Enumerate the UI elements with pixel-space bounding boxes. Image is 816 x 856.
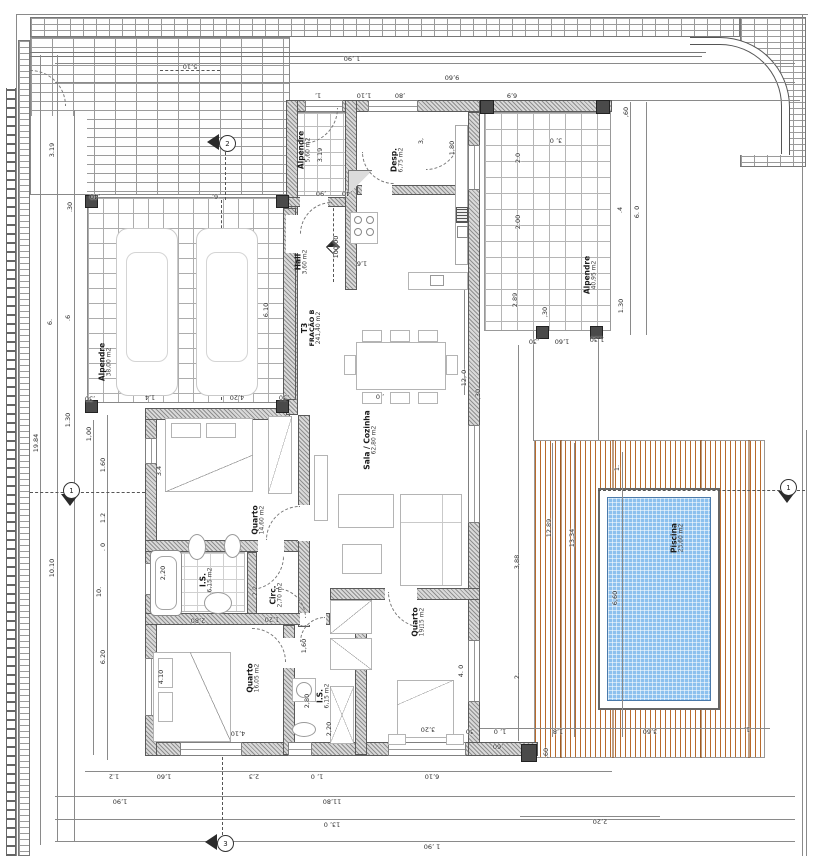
dim-label: , 0 xyxy=(376,393,384,400)
dim-label: 1 ,90 xyxy=(344,55,361,62)
dim-line xyxy=(107,415,108,760)
dim-label: 100.00 xyxy=(333,236,340,259)
dim-label: 6. 0 xyxy=(634,206,641,218)
dim-label: 6.10 xyxy=(263,303,270,317)
burner xyxy=(366,216,374,224)
dim-line xyxy=(518,345,519,741)
dim-label: 1,90 xyxy=(113,798,127,805)
toilet xyxy=(292,722,316,737)
dim-label: 1,30 xyxy=(590,336,604,343)
dim-line xyxy=(630,102,631,335)
dim-label: 4,20 xyxy=(230,394,244,401)
post xyxy=(276,400,289,413)
dim-label: 1, 0 xyxy=(494,728,506,735)
bidet xyxy=(224,534,241,558)
dim-label: 1,10 xyxy=(357,92,371,99)
dining-table xyxy=(356,342,446,390)
chair xyxy=(390,392,410,404)
sink xyxy=(430,275,444,286)
dim-label: 4,10 xyxy=(231,730,245,737)
room-area: 6,15 m2 xyxy=(208,568,215,593)
frame-right xyxy=(802,14,803,856)
dim-label: 1,6 xyxy=(357,260,367,267)
dim-label: 2,3 xyxy=(249,773,259,780)
dim-label: 2,20 xyxy=(593,818,607,825)
dim-label: 30 xyxy=(466,728,474,735)
section-marker-arrow-icon xyxy=(207,134,219,150)
room-label-fracao: T3FRAÇÃO B241,40 m2 xyxy=(301,309,323,346)
window xyxy=(468,425,480,523)
room-area: 16,05 m2 xyxy=(255,663,262,692)
section-marker: 1 xyxy=(773,477,803,507)
dim-label: 4.10 xyxy=(158,670,165,684)
room-label-circ: Circ.2,70 m2 xyxy=(270,583,285,608)
dim-label: 3,60 xyxy=(643,728,657,735)
window xyxy=(368,100,418,112)
dim-label: ,90 xyxy=(316,190,326,197)
dim-label: 13, 0 xyxy=(324,821,341,828)
dim-label: 6,9 xyxy=(507,92,517,99)
chair xyxy=(418,392,438,404)
window xyxy=(468,640,480,702)
burner xyxy=(366,228,374,236)
car-inner xyxy=(206,252,248,362)
room-label-is-2: I.S.6,15 m2 xyxy=(317,684,332,709)
dim-line xyxy=(622,452,623,737)
dim-label: 1, 0 xyxy=(311,773,323,780)
dim-label: ,40 xyxy=(342,190,352,197)
dim-label: 1.60 xyxy=(100,458,107,472)
dim-label: ,30 xyxy=(475,389,482,399)
door-gap xyxy=(362,185,392,195)
dim-line xyxy=(552,443,553,737)
dim-label: 11,80 xyxy=(323,798,342,805)
dim-label: 4. 0 xyxy=(458,665,465,677)
dim-label: 1. xyxy=(614,465,621,471)
pillow xyxy=(171,423,201,438)
dim-label: 6. xyxy=(47,319,54,325)
frame-top xyxy=(16,14,808,15)
room-area: 5,60 m2 xyxy=(306,131,313,169)
deck-plank xyxy=(748,440,750,758)
dim-label: .30 xyxy=(67,202,74,212)
dim-label: 1.2 xyxy=(100,513,107,523)
dim-label: 6, xyxy=(212,193,218,200)
room-label-alpendre-entry: Alpendre5,60 m2 xyxy=(298,131,313,169)
wall-segment xyxy=(480,100,612,112)
dim-label: 1,8 xyxy=(553,728,563,735)
dim-label: 1,20 xyxy=(265,616,279,623)
dim-label: ,60 xyxy=(493,743,503,750)
room-label-hall: Hall3,60 m2 xyxy=(295,250,310,275)
pillow xyxy=(446,734,464,745)
room-label-quarto-2: Quarto16,05 m2 xyxy=(247,663,262,692)
section-line xyxy=(30,492,145,493)
car-inner xyxy=(126,252,168,362)
floor-plan: Alpendre38,00 m2Alpendre5,60 m2Desp.6,75… xyxy=(0,0,816,856)
path-edge xyxy=(598,331,599,441)
dim-line xyxy=(57,55,58,841)
room-area: 3,60 m2 xyxy=(303,250,310,275)
frame-right2 xyxy=(806,430,807,856)
bed-fold xyxy=(165,455,253,492)
path-line xyxy=(30,56,702,57)
dim-label: 10. xyxy=(96,587,103,597)
door-arc xyxy=(252,628,286,662)
dim-label: 1,00 xyxy=(86,427,93,441)
dim-label: .6 xyxy=(65,315,72,321)
wardrobe-diag xyxy=(330,600,372,634)
chair xyxy=(418,330,438,342)
dim-label: 12.89 xyxy=(546,519,553,538)
counter xyxy=(455,125,468,265)
section-marker-arrow-icon xyxy=(205,834,217,850)
fence-ticks xyxy=(6,88,16,856)
frame-left xyxy=(16,14,17,856)
dim-label: 3,20 xyxy=(421,726,435,733)
dim-label: 13.34 xyxy=(569,529,576,548)
dim-label: 19.84 xyxy=(33,434,40,453)
section-marker: 2 xyxy=(207,128,237,158)
sofa xyxy=(400,494,462,586)
dim-label: 1,60 xyxy=(157,773,171,780)
dim-label: 2,80 xyxy=(304,694,311,708)
boundary-wall-left xyxy=(18,40,30,856)
dim-label: 2,80 xyxy=(191,617,205,624)
room-label-alpendre-carport: Alpendre38,00 m2 xyxy=(99,343,114,381)
section-marker-number: 2 xyxy=(219,135,236,152)
dim-line xyxy=(520,816,660,817)
room-area: 62,80 m2 xyxy=(372,410,379,469)
dim-label: 1 ,90 xyxy=(424,843,441,850)
dim-label: 6.20 xyxy=(100,650,107,664)
room-area: 38,00 m2 xyxy=(107,343,114,381)
section-marker-number: 1 xyxy=(63,482,80,499)
room-label-despensa: Desp.6,75 m2 xyxy=(391,148,406,173)
door-gap xyxy=(258,540,284,552)
post xyxy=(480,100,494,114)
room-label-quarto-1: Quarto14,60 m2 xyxy=(252,505,267,534)
path-edge xyxy=(533,331,534,441)
dim-line xyxy=(480,728,770,729)
coffee-table xyxy=(342,544,382,574)
room-area: 19,15 m2 xyxy=(420,607,427,636)
right-porch-tiles xyxy=(484,112,611,331)
window xyxy=(468,145,480,190)
chair xyxy=(446,355,458,375)
toilet xyxy=(188,534,206,560)
pillow xyxy=(388,734,406,745)
section-marker: 3 xyxy=(205,828,235,856)
dim-label: ,60 xyxy=(623,107,630,117)
door-gap xyxy=(286,215,298,253)
room-area: 241,40 m2 xyxy=(316,309,323,346)
dim-label: 1.30 xyxy=(618,299,625,313)
wardrobe-diag xyxy=(268,416,292,494)
dim-label: 3.19 xyxy=(317,148,324,162)
dim-label: 6,10 xyxy=(425,773,439,780)
window xyxy=(288,742,312,756)
section-marker-number: 1 xyxy=(780,479,797,496)
room-area: 2,70 m2 xyxy=(278,583,285,608)
pillow xyxy=(158,692,173,722)
dim-label: 1,80 xyxy=(449,141,456,155)
room-label-is-1: I.S.6,15 m2 xyxy=(200,568,215,593)
tv-cabinet xyxy=(314,455,328,521)
oven xyxy=(456,207,468,223)
dim-label: 2,20 xyxy=(326,722,333,736)
room-area: 14,60 m2 xyxy=(260,505,267,534)
post xyxy=(521,744,537,762)
dim-label: 3,88 xyxy=(514,555,521,569)
section-marker: 1 xyxy=(56,480,86,510)
dim-label: 1, xyxy=(315,92,321,99)
post xyxy=(596,100,610,114)
dim-line xyxy=(55,796,795,797)
deck-plank xyxy=(560,440,562,758)
room-area: 6,15 m2 xyxy=(325,684,332,709)
dim-label: 2.00 xyxy=(515,215,522,229)
dim-label: ,30 xyxy=(542,307,549,317)
path-line xyxy=(30,52,706,53)
dim-label: 1,60 xyxy=(555,338,569,345)
dim-line xyxy=(55,819,795,820)
dim-label: 2.2 xyxy=(252,586,259,596)
shower-diag xyxy=(330,686,354,744)
burner xyxy=(354,228,362,236)
dim-line xyxy=(646,102,647,335)
bathtub-inner xyxy=(155,556,177,610)
dim-label: ,40 xyxy=(90,193,100,200)
burner xyxy=(354,216,362,224)
dim-label: 9,60 xyxy=(445,74,459,81)
dim-label: . 0 xyxy=(100,543,107,551)
dim-label: ,60 xyxy=(543,748,550,758)
dim-line xyxy=(55,82,795,83)
dim-label: ,30 xyxy=(85,395,95,402)
dim-line xyxy=(74,110,75,841)
dim-label: 2.89 xyxy=(512,293,519,307)
dim-label: 2,20 xyxy=(160,566,167,580)
wardrobe-diag xyxy=(330,638,372,670)
room-area: 23,60 m2 xyxy=(679,523,686,553)
bed-fold xyxy=(190,652,231,742)
dim-label: 3.19 xyxy=(49,143,56,157)
pillow xyxy=(206,423,236,438)
post xyxy=(276,195,289,208)
dim-label: 1,4 xyxy=(145,394,155,401)
room-label-piscina: Piscina23,60 m2 xyxy=(671,523,686,553)
dim-label: 1, xyxy=(744,726,750,733)
appliance xyxy=(457,226,468,238)
section-marker-number: 3 xyxy=(217,835,234,852)
chair xyxy=(390,330,410,342)
room-label-alpendre-right: Alpendre40,95 m2 xyxy=(584,256,599,294)
room-label-sala-cozinha: Sala / Cozinha62,80 m2 xyxy=(364,410,379,469)
washbasin xyxy=(204,592,232,614)
dim-line xyxy=(574,443,575,737)
chair xyxy=(344,355,356,375)
sofa xyxy=(338,494,394,528)
dim-line xyxy=(40,55,41,845)
dim-label: 3.4 xyxy=(156,466,163,476)
dim-line xyxy=(55,63,795,64)
door-arc xyxy=(266,506,300,540)
room-area: 6,75 m2 xyxy=(399,148,406,173)
dim-label: .4 xyxy=(617,207,624,213)
dim-label: 12, 0 xyxy=(461,370,468,387)
dim-label: 3, 0 xyxy=(550,137,562,144)
room-area: 40,95 m2 xyxy=(592,256,599,294)
dim-label: 1,60 xyxy=(301,639,308,653)
window xyxy=(180,742,242,756)
dim-label: 2. xyxy=(514,673,521,679)
dim-label: 5,10 xyxy=(183,63,197,70)
dim-label: 1.2 xyxy=(109,773,119,780)
dim-label: 2.0 xyxy=(515,153,522,163)
chair xyxy=(362,330,382,342)
dim-label: 10.10 xyxy=(49,559,56,578)
room-label-quarto-3: Quarto19,15 m2 xyxy=(412,607,427,636)
dim-label: ,80 xyxy=(395,92,405,99)
dim-label: 1.30 xyxy=(65,413,72,427)
section-line xyxy=(225,152,226,200)
bed-fold xyxy=(397,680,454,705)
dim-label: 6,60 xyxy=(612,591,619,605)
boundary-wall-top xyxy=(30,17,740,37)
dim-label: 3, xyxy=(418,138,425,144)
window xyxy=(145,438,157,464)
dim-label: ,30 xyxy=(529,338,539,345)
dim-label: ,30 xyxy=(279,394,289,401)
